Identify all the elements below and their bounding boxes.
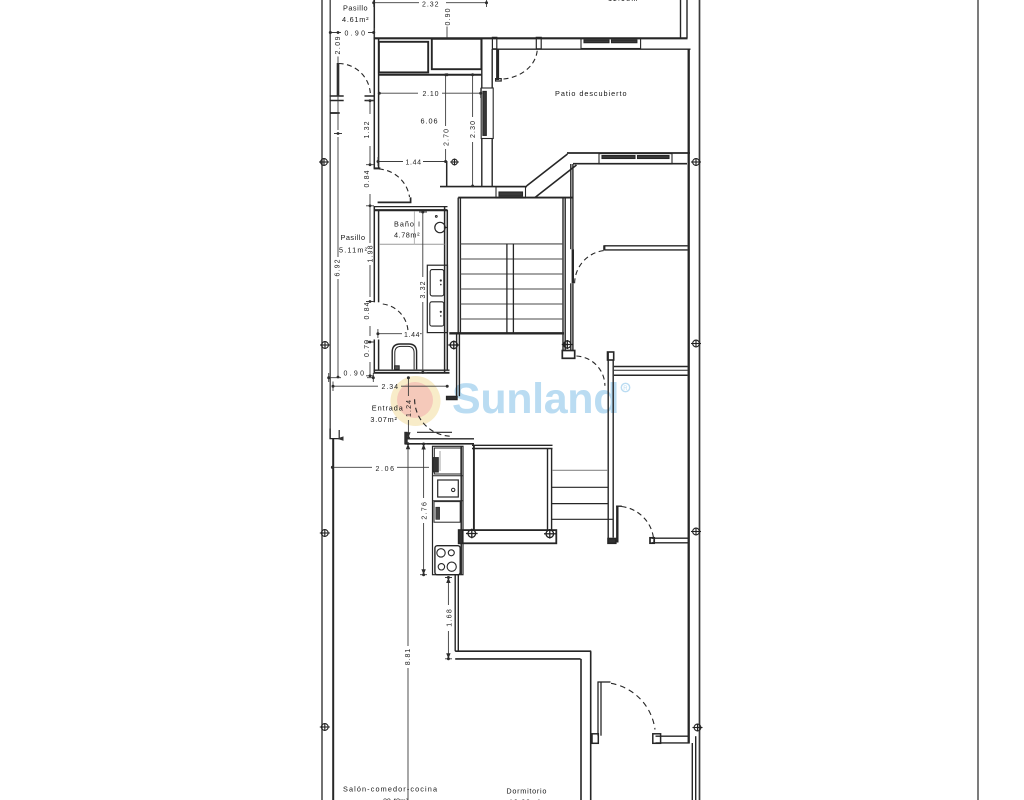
- svg-text:Baño I: Baño I: [394, 220, 420, 229]
- svg-text:R: R: [623, 386, 628, 392]
- svg-text:2.32: 2.32: [422, 2, 439, 9]
- svg-text:1.44: 1.44: [406, 160, 422, 167]
- svg-text:1.24: 1.24: [406, 400, 413, 417]
- svg-text:Pasillo: Pasillo: [343, 4, 368, 13]
- svg-text:3.07m²: 3.07m²: [370, 415, 397, 424]
- svg-text:2.10: 2.10: [423, 91, 439, 98]
- svg-text:22.48m²: 22.48m²: [383, 797, 409, 800]
- svg-text:0.70: 0.70: [364, 340, 371, 357]
- svg-text:Dormitorio: Dormitorio: [506, 786, 546, 795]
- svg-text:Salón-comedor-cocina: Salón-comedor-cocina: [343, 785, 438, 794]
- svg-text:2.06: 2.06: [376, 466, 395, 473]
- svg-text:Pasillo: Pasillo: [341, 233, 366, 242]
- svg-text:0.90: 0.90: [345, 31, 366, 38]
- svg-text:6.92: 6.92: [335, 259, 342, 276]
- svg-text:2.30: 2.30: [470, 121, 477, 138]
- svg-text:1.32: 1.32: [364, 121, 371, 138]
- svg-text:Sunland: Sunland: [452, 375, 619, 423]
- svg-text:Patio descubierto: Patio descubierto: [555, 89, 627, 98]
- svg-text:3.32: 3.32: [420, 281, 427, 298]
- svg-text:2.34: 2.34: [382, 384, 399, 391]
- svg-text:2.70: 2.70: [444, 129, 451, 146]
- svg-text:4.61m²: 4.61m²: [342, 15, 369, 24]
- svg-text:1.98: 1.98: [367, 245, 374, 262]
- svg-text:5.11m²: 5.11m²: [339, 246, 368, 255]
- svg-text:0.90: 0.90: [445, 8, 452, 25]
- svg-text:2.09: 2.09: [335, 36, 342, 54]
- svg-text:0.90: 0.90: [344, 370, 365, 377]
- svg-text:2.76: 2.76: [422, 502, 429, 520]
- svg-text:6.06: 6.06: [421, 117, 438, 126]
- svg-text:0.84: 0.84: [364, 302, 371, 319]
- svg-text:11.98m²: 11.98m²: [608, 0, 642, 3]
- svg-text:8.81: 8.81: [405, 649, 412, 666]
- svg-text:Entrada: Entrada: [372, 404, 404, 413]
- svg-text:1.68: 1.68: [447, 609, 454, 627]
- svg-text:0.84: 0.84: [364, 170, 371, 187]
- svg-text:1.44: 1.44: [404, 332, 420, 339]
- svg-text:4.78m²: 4.78m²: [394, 231, 420, 240]
